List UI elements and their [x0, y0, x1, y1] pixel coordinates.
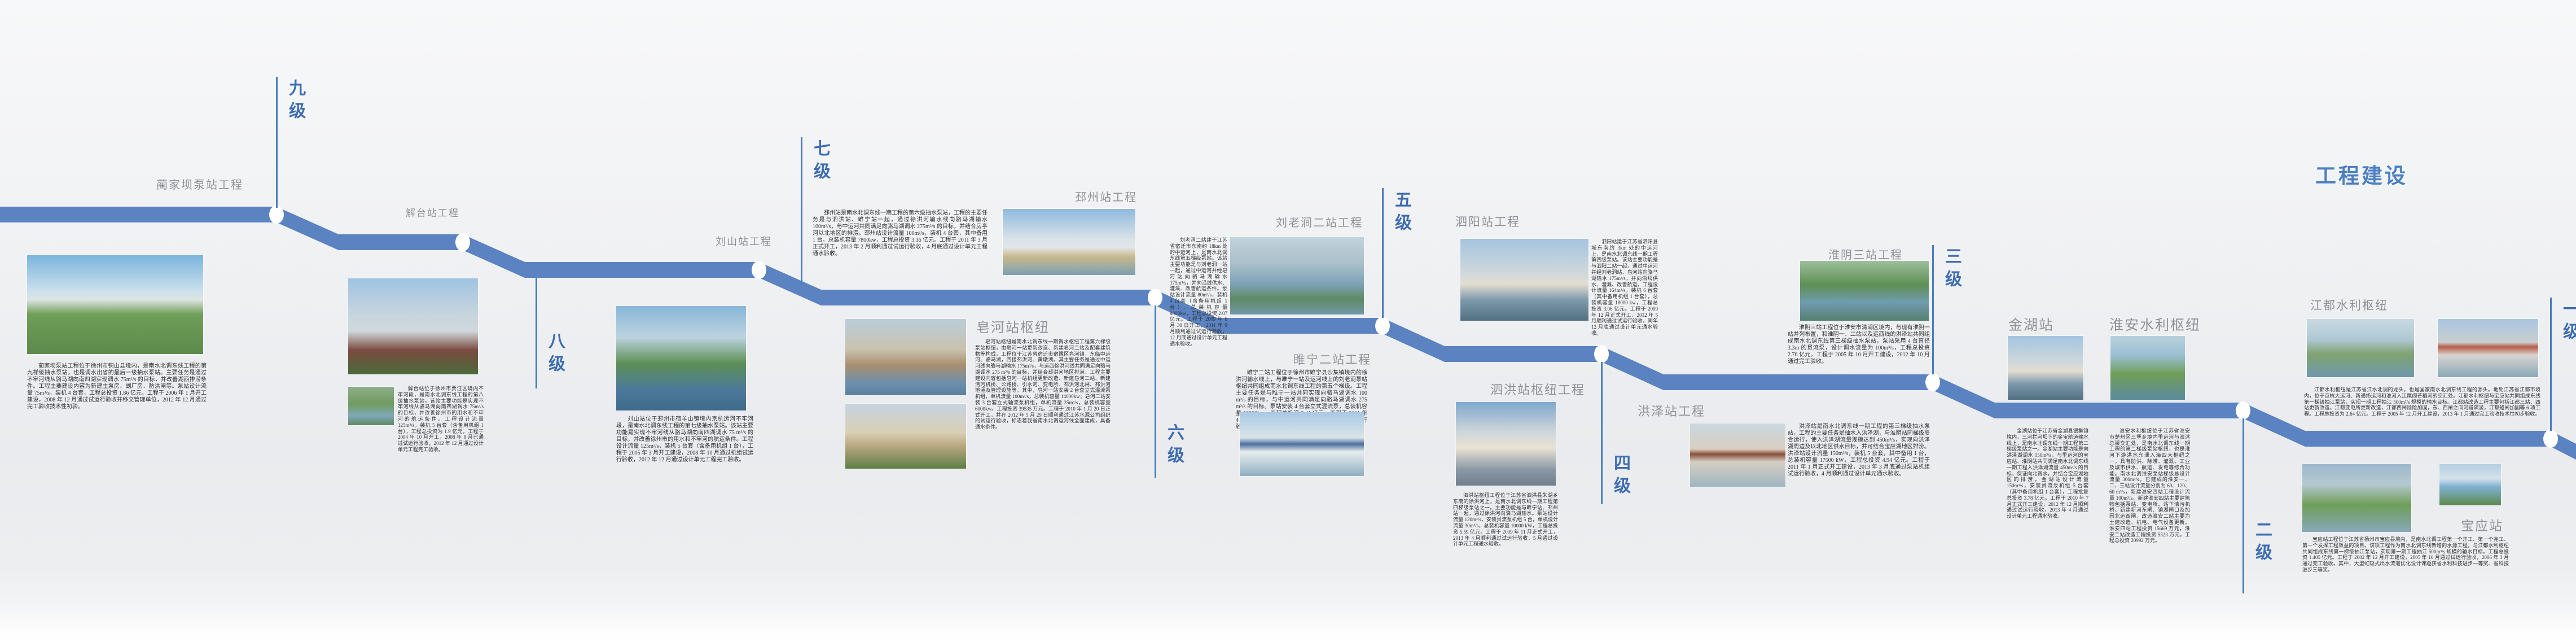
- station-label-sihong: 泗洪站枢纽工程: [1490, 380, 1585, 398]
- photo-zaohe-building: [845, 404, 966, 469]
- photo-hongze-building: [1690, 423, 1785, 487]
- junction-dot-4: [1594, 345, 1609, 363]
- station-label-huaiyin: 淮阴三站工程: [1828, 246, 1903, 262]
- level-line-3: [1932, 245, 1934, 374]
- photo-baoying-aerial: [2302, 464, 2411, 532]
- photo-pizhou-building: [1003, 209, 1135, 275]
- photo-jietai-building: [348, 278, 478, 374]
- station-label-pizhou: 邳州站工程: [1075, 188, 1137, 204]
- level-line-9: [276, 77, 278, 208]
- station-para-baoying: 宝应站工程位于江苏省扬州市宝应县境内，是南水北调工程第一个开工、第一个完工、第一…: [2302, 536, 2509, 573]
- station-para-huaian: 淮安水利枢纽位于江苏省淮安市楚州区三堡乡境内里运河与淮沭总渠交汇处，是南水北调东…: [2109, 428, 2190, 544]
- bottom-fade: [0, 611, 2576, 642]
- station-para-sihong: 泗洪站枢纽工程位于江苏省泗洪县朱湖乡东南的徐洪河上，是南水北调东线一期工程第四梯…: [1453, 492, 1558, 547]
- level-label-7: 七级: [808, 139, 832, 185]
- station-label-huaian: 淮安水利枢纽: [2109, 314, 2201, 334]
- exhibition-board: 工程建设 九级 八级 七级 六级 五级 四级 三级 二级 一级 蔺家坝泵站工程 …: [0, 0, 2576, 642]
- photo-huaiyin-aerial: [1800, 261, 1929, 321]
- photo-zaohe-construction: [845, 319, 966, 395]
- station-para-siyang: 泗阳站建于江苏省泗阳县城东南约 3km 处的中运河上，是南水北调东线一期工程第四…: [1591, 239, 1658, 337]
- level-label-6: 六级: [1161, 423, 1186, 469]
- photo-liulaojian-aerial: [1230, 237, 1364, 315]
- station-para-pizhou: 邳州站是南水北调东线一期工程的第六级抽水泵站，工程的主要任务是与泗洪站、睢宁站一…: [813, 210, 988, 257]
- station-para-liushan: 刘山站位于邳州市宿羊山镇境内京杭运河不牢河段，是南水北调东线工程的第七级抽水泵站…: [616, 416, 753, 464]
- station-para-zaohe: 皂河站枢纽是南水北调东线一期调水枢纽工程第六梯级泵站枢纽，由皂河一站更新改造、新…: [975, 339, 1111, 430]
- station-label-liushan: 刘山站工程: [716, 234, 772, 248]
- station-label-suining: 睢宁二站工程: [1293, 351, 1371, 368]
- photo-baoying-building: [2439, 464, 2501, 505]
- junction-dot-5: [1375, 317, 1390, 335]
- photo-linjiaba-aerial: [27, 255, 203, 354]
- photo-jiangdu-station: [2438, 319, 2538, 377]
- junction-dot-3: [1925, 373, 1940, 391]
- level-line-5: [1382, 188, 1384, 318]
- photo-huaian-aerial: [2110, 336, 2185, 400]
- level-label-4: 四级: [1608, 454, 1633, 499]
- station-label-jiangdu: 江都水利枢纽: [2310, 296, 2388, 313]
- junction-dot-6: [1148, 289, 1162, 307]
- station-label-linjiaba: 蔺家坝泵站工程: [156, 176, 243, 192]
- level-label-9: 九级: [283, 79, 308, 124]
- level-line-6: [1155, 305, 1156, 478]
- photo-jiangdu-aerial: [2307, 319, 2414, 377]
- station-para-hongze: 洪泽站是南水北调东线一期工程的第三梯级抽水泵站，工程的主要任务是抽水入洪泽湖，与…: [1788, 423, 1930, 478]
- photo-jinhu-building: [2008, 336, 2083, 400]
- level-line-1: [2550, 298, 2552, 431]
- station-para-jinhu: 金湖站位于江苏省金湖县银集镇境内，三河拦河坝下的金宝航道输水线上，是南水北调东线…: [2007, 428, 2088, 519]
- station-para-huaiyin: 淮阴三站工程位于淮安市清浦区境内，与现有淮阴一站并列布置，和淮阴一、二站以及运西…: [1788, 325, 1930, 365]
- station-para-liulaojian: 刘老涧二站建于江苏省宿迁市东南约 18km 处的中运河上，是南水北调东线第五梯级…: [1170, 237, 1227, 347]
- level-label-8: 八级: [542, 332, 567, 377]
- level-label-1: 一级: [2557, 300, 2576, 345]
- junction-dot-9: [269, 206, 284, 224]
- photo-siyang-building: [1460, 239, 1588, 321]
- station-label-jietai: 解台站工程: [406, 205, 459, 219]
- level-line-7: [801, 137, 802, 285]
- station-label-baoying: 宝应站: [2461, 515, 2503, 534]
- junction-dot-1: [2543, 430, 2558, 448]
- station-label-siyang: 泗阳站工程: [1455, 213, 1520, 230]
- station-label-liulaojian: 刘老涧二站工程: [1276, 213, 1363, 230]
- level-label-3: 三级: [1939, 247, 1964, 292]
- station-label-zaohe: 皂河站枢纽: [976, 316, 1050, 336]
- level-line-2: [2243, 418, 2244, 593]
- junction-dot-2: [2236, 401, 2250, 420]
- page-title: 工程建设: [2315, 159, 2408, 189]
- level-line-4: [1601, 362, 1603, 504]
- station-para-jiangdu: 江都水利枢纽是江苏省江水北调的龙头，也是国家南水北调东线工程的源头。地处江苏省江…: [2304, 387, 2540, 417]
- photo-jietai-aerial: [348, 387, 394, 425]
- level-label-5: 五级: [1389, 191, 1414, 236]
- junction-dot-7: [752, 261, 766, 279]
- photo-sihong-building: [1456, 402, 1556, 486]
- photo-suining-building: [1240, 412, 1364, 476]
- station-para-linjiaba: 蔺家坝泵站工程位于徐州市铜山县境内，是南水北调东线工程的第九梯级抽水泵站，也是调…: [27, 363, 207, 410]
- station-label-hongze: 洪泽站工程: [1638, 401, 1705, 420]
- photo-liushan-aerial: [616, 306, 746, 410]
- level-label-2: 二级: [2249, 521, 2274, 566]
- station-para-jietai: 解台站位于徐州市贾汪区境内不牢河段，是南水北调东线工程的第八级抽水泵站。该站主要…: [398, 386, 484, 453]
- level-line-8: [536, 278, 537, 388]
- station-label-jinhu: 金湖站: [2008, 314, 2054, 334]
- junction-dot-8: [455, 233, 470, 251]
